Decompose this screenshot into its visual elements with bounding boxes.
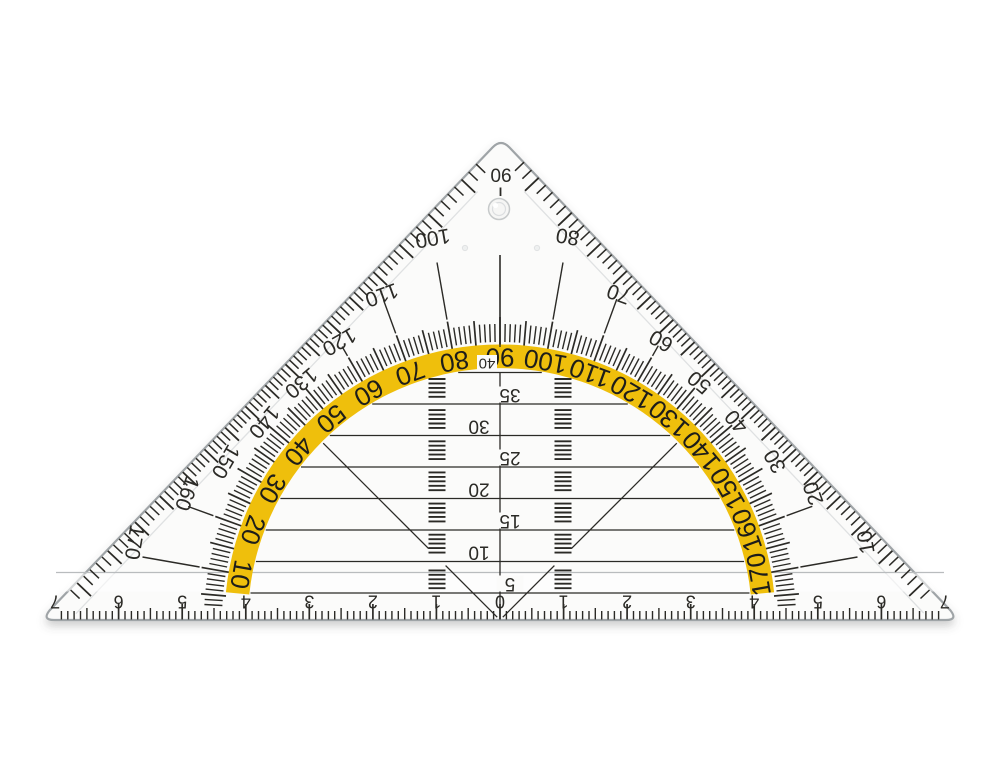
arc-degree-tick <box>485 324 486 342</box>
ruler-number: 3 <box>686 592 696 612</box>
arc-degree-tick <box>204 605 222 606</box>
arc-degree-tick <box>490 324 491 342</box>
grid-label: 25 <box>499 447 520 468</box>
set-square-photo: 0112233445566771020304050607080901001101… <box>0 0 1000 762</box>
grid-label: 20 <box>468 479 489 500</box>
molded-dimple <box>534 245 539 250</box>
arc-degree-label: 80 <box>438 344 472 379</box>
ruler-number: 7 <box>50 592 60 612</box>
edge-degree-label: 170 <box>120 523 149 562</box>
ruler-number: 5 <box>813 592 823 612</box>
grid-label: 10 <box>468 542 489 563</box>
grid-label: 30 <box>468 416 489 437</box>
arc-degree-tick <box>515 324 516 342</box>
ruler-number: 1 <box>431 592 441 612</box>
ruler-number: 5 <box>177 592 187 612</box>
apex-90-label: 90 <box>490 164 511 185</box>
grid-label: 40 <box>479 355 496 372</box>
photo-of-set-square: 0112233445566771020304050607080901001101… <box>0 0 1000 762</box>
arc-degree-label: 10 <box>224 558 259 592</box>
grid-label: 35 <box>499 384 520 405</box>
ruler-number: 6 <box>876 592 886 612</box>
ruler-number: 3 <box>304 592 314 612</box>
ruler-number: 6 <box>114 592 124 612</box>
molded-dimple <box>462 245 467 250</box>
ruler-number: 7 <box>940 592 950 612</box>
grid-label: 5 <box>505 573 516 594</box>
hole-glint <box>493 203 498 208</box>
protractor-hole <box>489 199 510 220</box>
arc-degree-tick <box>778 605 796 606</box>
ruler-number: 2 <box>368 592 378 612</box>
ruler-number: 4 <box>241 592 251 612</box>
edge-degree-label: 80 <box>554 223 581 250</box>
ruler-number: 2 <box>622 592 632 612</box>
grid-label: 15 <box>499 510 520 531</box>
edge-degree-label: 10 <box>853 529 880 556</box>
ruler-number: 1 <box>559 592 569 612</box>
arc-degree-tick <box>510 324 511 342</box>
